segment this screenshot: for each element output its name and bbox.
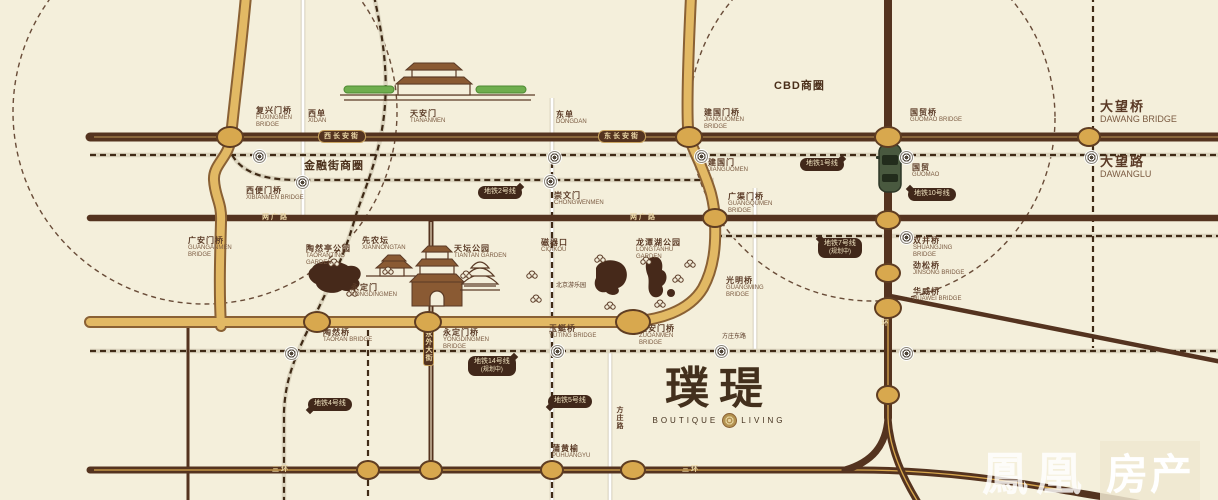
road-junction-node — [875, 263, 901, 283]
map-labels-layer: 金融街商圈CBD商圈复兴门桥FUXINGMEN BRIDGE西单XIDAN天安门… — [0, 0, 1218, 500]
road-name-label: 两广路 — [262, 214, 289, 221]
subway-line-callout: 地铁14号线(规划中) — [468, 356, 516, 376]
park-name-zh: 龙潭湖公园 — [636, 238, 694, 247]
bridge-name-en: JIANGUOMEN — [708, 167, 748, 174]
brand-name-english-left: BOUTIQUE — [652, 416, 718, 425]
bridge-label: 大望桥DAWANG BRIDGE — [1100, 100, 1177, 125]
road-junction-node — [303, 311, 331, 333]
bridge-label: 光明桥GUANGMING BRIDGE — [726, 276, 784, 298]
subway-line-callout: 地铁10号线 — [908, 188, 956, 201]
subway-line-status: (规划中) — [824, 249, 856, 257]
bridge-label: 建国门桥JIANGUOMEN BRIDGE — [704, 108, 762, 130]
subway-line-name: 地铁1号线 — [806, 160, 838, 169]
subway-station-icon — [544, 175, 557, 188]
subway-station-icon — [253, 150, 266, 163]
map-note-label: 方庄东路 — [722, 331, 746, 340]
map-note-label: 北京游乐园 — [556, 280, 586, 289]
bridge-name-zh: 劲松桥 — [913, 261, 964, 270]
bridge-name-en: JINSONG BRIDGE — [913, 270, 964, 277]
road-junction-node — [876, 385, 900, 405]
park-name-en: TIANTAN GARDEN — [454, 253, 507, 260]
district-label: 金融街商圈 — [304, 160, 364, 173]
bridge-label: 国贸桥GUOMAO BRIDGE — [910, 108, 962, 124]
bridge-name-zh: 建国门桥 — [704, 108, 762, 117]
bridge-name-zh: 玉蜓桥 — [549, 324, 596, 333]
road-junction-node — [874, 126, 902, 148]
bridge-label: 玉蜓桥YUTING BRIDGE — [549, 324, 596, 340]
bridge-name-zh: 双井桥 — [913, 236, 971, 245]
subway-station-icon — [285, 347, 298, 360]
brand-name-english-right: LIVING — [741, 416, 785, 425]
subway-line-name: 地铁7号线 — [824, 240, 856, 249]
bridge-name-en: YUTING BRIDGE — [549, 333, 596, 340]
bridge-name-en: GUANGMING BRIDGE — [726, 285, 784, 298]
park-label: 天坛公园TIANTAN GARDEN — [454, 244, 507, 260]
bridge-name-en: GUANGQUMEN BRIDGE — [728, 201, 786, 214]
bridge-name-zh: 国贸桥 — [910, 108, 962, 117]
bridge-name-zh: 复兴门桥 — [256, 106, 314, 115]
bridge-name-en: GUANGANMEN BRIDGE — [188, 245, 246, 258]
bridge-label: 蒲黄榆PUHUANGYU — [552, 444, 590, 460]
subway-line-callout: 地铁5号线 — [548, 395, 592, 408]
bridge-name-en: XIBIANMEN BRIDGE — [246, 195, 304, 202]
road-junction-node — [620, 460, 646, 480]
road-name-label: 西长安街 — [318, 130, 366, 143]
bridge-label: 永定门桥YONGDINGMEN BRIDGE — [443, 328, 501, 350]
phoenix-watermark: 鳳凰 房产 — [982, 438, 1200, 500]
bridge-name-zh: 建国门 — [708, 158, 748, 167]
road-name-label: 三环 — [682, 466, 700, 473]
park-name-zh: 天坛公园 — [454, 244, 507, 253]
bridge-label: 陶然桥TAORAN BRIDGE — [323, 328, 372, 344]
bridge-label: 磁器口CIQIKOU — [541, 238, 568, 254]
bridge-name-en: DAWANGLU — [1100, 170, 1151, 180]
subway-station-icon — [900, 231, 913, 244]
bridge-name-en: FUXINGMEN BRIDGE — [256, 115, 314, 128]
district-label: CBD商圈 — [774, 80, 825, 93]
bridge-name-en: YONGDINGMEN BRIDGE — [443, 337, 501, 350]
bridge-name-en: CIQIKOU — [541, 247, 568, 254]
bridge-name-en: DONGDAN — [556, 119, 587, 126]
subway-station-icon — [1085, 151, 1098, 164]
road-junction-node — [615, 309, 651, 335]
bridge-name-en: DAWANG BRIDGE — [1100, 115, 1177, 125]
bridge-name-en: HUAWEI BRIDGE — [913, 296, 961, 303]
bridge-name-zh: 国贸 — [912, 163, 939, 172]
road-junction-node — [356, 460, 380, 480]
bridge-name-en: XIDAN — [308, 118, 326, 125]
park-label: 永定门YONGDINGMEN — [351, 283, 397, 299]
road-name-label: 东长安街 — [598, 130, 646, 143]
subway-line-name: 地铁14号线 — [474, 358, 510, 367]
bridge-label: 复兴门桥FUXINGMEN BRIDGE — [256, 106, 314, 128]
road-name-label: 两广路 — [630, 214, 657, 221]
watermark-estate-text: 房产 — [1100, 441, 1200, 500]
road-name-label: 方庄路 — [616, 406, 623, 430]
subway-line-name: 地铁5号线 — [554, 397, 586, 406]
road-name-label: 三环 — [272, 466, 290, 473]
bridge-name-zh: 崇文门 — [554, 191, 604, 200]
subway-line-callout: 地铁1号线 — [800, 158, 844, 171]
bridge-name-en: TAORAN BRIDGE — [323, 337, 372, 344]
bridge-name-en: TIANANMEN — [410, 118, 445, 125]
park-name-zh: 先农坛 — [362, 236, 406, 245]
bridge-name-en: GUOMAO — [912, 172, 939, 179]
subway-line-callout: 地铁4号线 — [308, 398, 352, 411]
bridge-label: 双井桥SHUANGJING BRIDGE — [913, 236, 971, 258]
park-label: 陶然亭公园TAORANTING GARDEN — [306, 244, 364, 266]
subway-line-name: 地铁10号线 — [914, 190, 950, 199]
park-name-en: YONGDINGMEN — [351, 292, 397, 299]
road-junction-node — [675, 126, 703, 148]
subway-station-icon — [900, 151, 913, 164]
park-name-en: LONGTANHU GARDEN — [636, 247, 694, 260]
bridge-label: 劲松桥JINSONG BRIDGE — [913, 261, 964, 277]
brand-logo: 璞瑅 BOUTIQUE LIVING — [646, 366, 792, 428]
road-junction-node — [419, 460, 443, 480]
bridge-label: 华威桥HUAWEI BRIDGE — [913, 287, 961, 303]
road-junction-node — [875, 210, 901, 230]
park-name-zh: 陶然亭公园 — [306, 244, 364, 253]
bridge-label: 建国门JIANGUOMEN — [708, 158, 748, 174]
bridge-name-zh: 西单 — [308, 109, 326, 118]
watermark-phoenix-text: 鳳凰 — [982, 438, 1090, 500]
bridge-name-en: JIANGUOMEN BRIDGE — [704, 117, 762, 130]
bridge-name-zh: 大望桥 — [1100, 100, 1177, 115]
park-name-en: TAORANTING GARDEN — [306, 253, 364, 266]
road-junction-node — [702, 208, 728, 228]
subway-line-name: 地铁4号线 — [314, 400, 346, 409]
brand-seal-icon — [722, 413, 737, 428]
subway-station-icon — [900, 347, 913, 360]
bridge-name-zh: 大望路 — [1100, 155, 1151, 170]
subway-line-callout: 地铁2号线 — [478, 186, 522, 199]
bridge-name-zh: 华威桥 — [913, 287, 961, 296]
road-junction-node — [1077, 127, 1101, 147]
bridge-label: 国贸GUOMAO — [912, 163, 939, 179]
bridge-label: 崇文门CHONGWENMEN — [554, 191, 604, 207]
bridge-name-en: PUHUANGYU — [552, 453, 590, 460]
road-junction-node — [414, 311, 442, 333]
brand-name-chinese: 璞瑅 — [646, 366, 792, 412]
bridge-label: 西便门桥XIBIANMEN BRIDGE — [246, 186, 304, 202]
subway-line-status: (规划中) — [474, 367, 510, 375]
bridge-label: 东单DONGDAN — [556, 110, 587, 126]
bridge-name-en: SHUANGJING BRIDGE — [913, 245, 971, 258]
bridge-name-zh: 光明桥 — [726, 276, 784, 285]
road-junction-node — [874, 297, 902, 319]
bridge-label: 大望路DAWANGLU — [1100, 155, 1151, 180]
bridge-name-en: ZUOANMEN BRIDGE — [639, 333, 697, 346]
location-map: 金融街商圈CBD商圈复兴门桥FUXINGMEN BRIDGE西单XIDAN天安门… — [0, 0, 1218, 500]
bridge-name-zh: 广安门桥 — [188, 236, 246, 245]
subway-station-icon — [715, 345, 728, 358]
bridge-name-zh: 蒲黄榆 — [552, 444, 590, 453]
bridge-name-zh: 东单 — [556, 110, 587, 119]
park-label: 龙潭湖公园LONGTANHU GARDEN — [636, 238, 694, 260]
park-name-zh: 永定门 — [351, 283, 397, 292]
road-junction-node — [540, 460, 564, 480]
bridge-name-en: GUOMAO BRIDGE — [910, 117, 962, 124]
bridge-name-zh: 磁器口 — [541, 238, 568, 247]
bridge-name-zh: 广渠门桥 — [728, 192, 786, 201]
subway-station-icon — [551, 345, 564, 358]
subway-station-icon — [548, 151, 561, 164]
park-name-en: XIANNONGTAN — [362, 245, 406, 252]
bridge-label: 西单XIDAN — [308, 109, 326, 125]
bridge-label: 天安门TIANANMEN — [410, 109, 445, 125]
subway-station-icon — [296, 176, 309, 189]
bridge-name-zh: 陶然桥 — [323, 328, 372, 337]
bridge-name-en: CHONGWENMEN — [554, 200, 604, 207]
bridge-name-zh: 天安门 — [410, 109, 445, 118]
subway-station-icon — [695, 150, 708, 163]
bridge-name-zh: 永定门桥 — [443, 328, 501, 337]
bridge-label: 广安门桥GUANGANMEN BRIDGE — [188, 236, 246, 258]
road-junction-node — [216, 126, 244, 148]
bridge-label: 广渠门桥GUANGQUMEN BRIDGE — [728, 192, 786, 214]
park-label: 先农坛XIANNONGTAN — [362, 236, 406, 252]
bridge-name-zh: 西便门桥 — [246, 186, 304, 195]
subway-line-name: 地铁2号线 — [484, 188, 516, 197]
subway-line-callout: 地铁7号线(规划中) — [818, 238, 862, 258]
